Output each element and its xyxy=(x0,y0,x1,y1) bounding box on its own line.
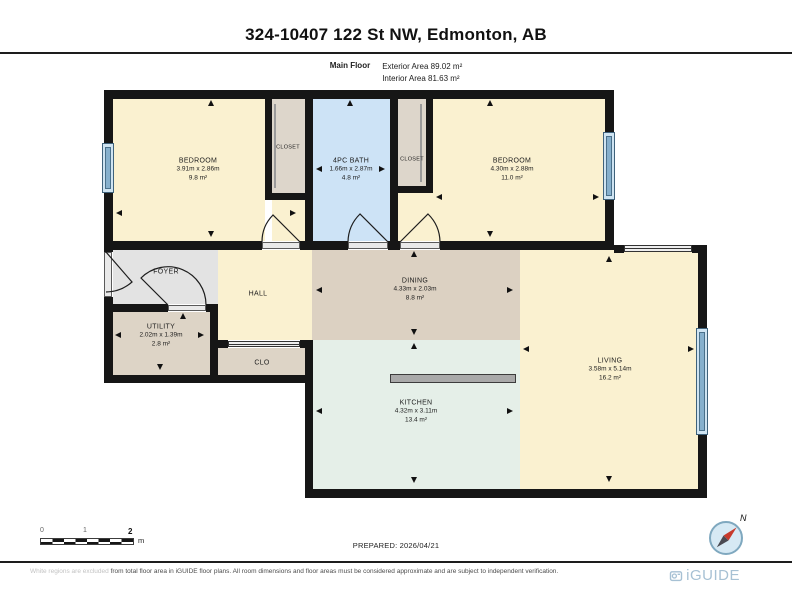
wall xyxy=(104,90,113,143)
iguide-camera-icon xyxy=(669,569,683,583)
dimension-arrow xyxy=(436,194,442,200)
wall xyxy=(104,241,262,250)
window xyxy=(603,132,615,200)
footer-disclaimer: White regions are excluded from total fl… xyxy=(30,568,630,575)
room-label-bath: 4PC BATH 1.66m x 2.87m 4.8 m² xyxy=(330,157,373,184)
dimension-arrow xyxy=(157,364,163,370)
wall xyxy=(305,98,313,250)
dimension-arrow xyxy=(180,313,186,319)
window xyxy=(696,328,708,435)
floor-summary: Main Floor Exterior Area 89.02 m² Interi… xyxy=(0,61,792,86)
dimension-arrow xyxy=(411,251,417,257)
dimension-arrow xyxy=(606,476,612,482)
exterior-area: Exterior Area 89.02 m² xyxy=(382,61,462,73)
scale-ticks: 0 1 2 xyxy=(40,527,200,536)
wall xyxy=(440,241,614,250)
prepared-date: PREPARED: 2026/04/21 xyxy=(0,541,792,550)
dimension-arrow xyxy=(487,100,493,106)
dimension-arrow xyxy=(316,287,322,293)
dimension-arrow xyxy=(411,477,417,483)
wall xyxy=(218,340,228,348)
wall xyxy=(210,304,218,383)
room-label-bedroom-2: BEDROOM 4.30m x 2.88m 11.0 m² xyxy=(491,157,534,184)
floor-label: Main Floor xyxy=(330,61,370,86)
wall xyxy=(614,245,624,253)
wall xyxy=(605,90,614,132)
room-label-closet-1: CLOSET xyxy=(276,144,300,151)
dimension-arrow xyxy=(198,332,204,338)
kitchen-island xyxy=(390,374,516,383)
dimension-arrow xyxy=(116,210,122,216)
dimension-arrow xyxy=(290,210,296,216)
sliding-door xyxy=(624,245,692,252)
wall xyxy=(426,98,433,193)
dimension-arrow xyxy=(208,100,214,106)
dimension-arrow xyxy=(606,256,612,262)
wall xyxy=(265,98,272,200)
iguide-logo-text: iGUIDE xyxy=(686,567,740,584)
iguide-logo: iGUIDE xyxy=(669,567,740,584)
dimension-arrow xyxy=(523,346,529,352)
wall xyxy=(698,435,707,498)
header-divider xyxy=(0,52,792,54)
closet-rod xyxy=(420,104,422,182)
dimension-arrow xyxy=(487,231,493,237)
room-label-dining: DINING 4.33m x 2.03m 8.8 m² xyxy=(394,277,437,304)
wall xyxy=(698,245,707,328)
floorplan-page: 324-10407 122 St NW, Edmonton, AB Main F… xyxy=(0,0,792,612)
door-opening xyxy=(400,242,440,249)
interior-area: Interior Area 81.63 m² xyxy=(382,73,462,85)
dimension-arrow xyxy=(347,100,353,106)
compass-north-label: N xyxy=(740,513,747,523)
wall xyxy=(104,304,168,312)
wall xyxy=(104,90,614,99)
entry-door-opening xyxy=(104,252,112,297)
dimension-arrow xyxy=(115,332,121,338)
wall xyxy=(104,375,313,383)
room-bedroom-1-ext xyxy=(272,200,305,241)
room-bedroom-2-ext xyxy=(398,193,433,241)
room-label-kitchen: KITCHEN 4.32m x 3.11m 13.4 m² xyxy=(395,399,438,426)
dimension-arrow xyxy=(593,194,599,200)
wall xyxy=(104,193,113,252)
door-opening xyxy=(168,305,206,311)
dimension-arrow xyxy=(379,166,385,172)
bifold-door xyxy=(228,341,300,347)
dimension-arrow xyxy=(507,408,513,414)
floor-areas: Exterior Area 89.02 m² Interior Area 81.… xyxy=(382,61,462,86)
room-foyer xyxy=(113,250,218,304)
wall xyxy=(104,297,113,383)
dimension-arrow xyxy=(316,166,322,172)
dimension-arrow xyxy=(507,287,513,293)
dimension-arrow xyxy=(411,343,417,349)
dimension-arrow xyxy=(688,346,694,352)
room-label-foyer: FOYER xyxy=(153,267,179,276)
room-label-living: LIVING 3.58m x 5.14m 16.2 m² xyxy=(589,357,632,384)
wall xyxy=(305,489,707,498)
dimension-arrow xyxy=(316,408,322,414)
room-label-clo: CLO xyxy=(254,358,269,367)
room-label-utility: UTILITY 2.02m x 1.39m 2.8 m² xyxy=(140,323,183,350)
dimension-arrow xyxy=(411,329,417,335)
page-title: 324-10407 122 St NW, Edmonton, AB xyxy=(0,25,792,45)
door-opening xyxy=(262,242,300,249)
window xyxy=(102,143,114,193)
door-opening xyxy=(348,242,388,249)
room-label-bedroom-1: BEDROOM 3.91m x 2.86m 9.8 m² xyxy=(177,157,220,184)
room-label-hall: HALL xyxy=(249,289,268,298)
wall xyxy=(390,98,398,250)
dimension-arrow xyxy=(208,231,214,237)
room-label-closet-2: CLOSET xyxy=(400,156,424,163)
footer-divider xyxy=(0,561,792,563)
wall xyxy=(605,200,614,250)
wall xyxy=(305,340,313,498)
